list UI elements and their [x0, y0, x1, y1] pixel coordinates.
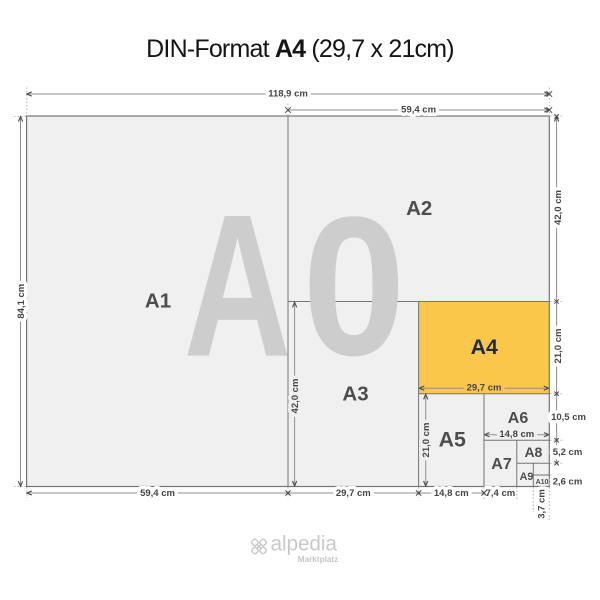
svg-text:Marktplatz: Marktplatz — [298, 555, 339, 564]
svg-text:DIN-Format A4 (29,7 x 21cm): DIN-Format A4 (29,7 x 21cm) — [146, 35, 454, 63]
svg-text:3,7 cm: 3,7 cm — [537, 489, 548, 519]
svg-text:7,4 cm: 7,4 cm — [486, 488, 516, 499]
svg-text:84,1 cm: 84,1 cm — [16, 284, 27, 319]
svg-text:A6: A6 — [508, 410, 529, 427]
svg-text:alpedia: alpedia — [271, 532, 338, 555]
svg-text:10,5 cm: 10,5 cm — [551, 412, 586, 423]
svg-text:A1: A1 — [145, 290, 171, 313]
svg-text:A7: A7 — [491, 456, 512, 473]
svg-text:A10: A10 — [536, 479, 549, 486]
svg-text:29,7 cm: 29,7 cm — [467, 383, 502, 394]
svg-text:5,2 cm: 5,2 cm — [553, 447, 583, 458]
svg-text:14,8 cm: 14,8 cm — [499, 429, 534, 440]
svg-text:0: 0 — [302, 175, 406, 397]
svg-text:59,4 cm: 59,4 cm — [140, 488, 175, 499]
svg-text:21,0 cm: 21,0 cm — [553, 329, 564, 364]
svg-text:118,9 cm: 118,9 cm — [268, 88, 308, 99]
svg-text:A4: A4 — [471, 335, 498, 359]
svg-text:A3: A3 — [342, 383, 368, 406]
svg-text:59,4 cm: 59,4 cm — [401, 104, 436, 115]
svg-text:A8: A8 — [524, 444, 542, 460]
svg-text:A2: A2 — [406, 197, 432, 220]
svg-text:A5: A5 — [439, 428, 466, 452]
svg-text:29,7 cm: 29,7 cm — [336, 488, 371, 499]
svg-text:A9: A9 — [520, 471, 534, 483]
svg-text:14,8 cm: 14,8 cm — [434, 488, 469, 499]
svg-text:42,0 cm: 42,0 cm — [553, 190, 564, 225]
svg-text:2,6 cm: 2,6 cm — [553, 476, 583, 487]
svg-text:21,0 cm: 21,0 cm — [421, 423, 432, 458]
svg-text:42,0 cm: 42,0 cm — [290, 379, 301, 414]
svg-text:A: A — [184, 172, 292, 399]
